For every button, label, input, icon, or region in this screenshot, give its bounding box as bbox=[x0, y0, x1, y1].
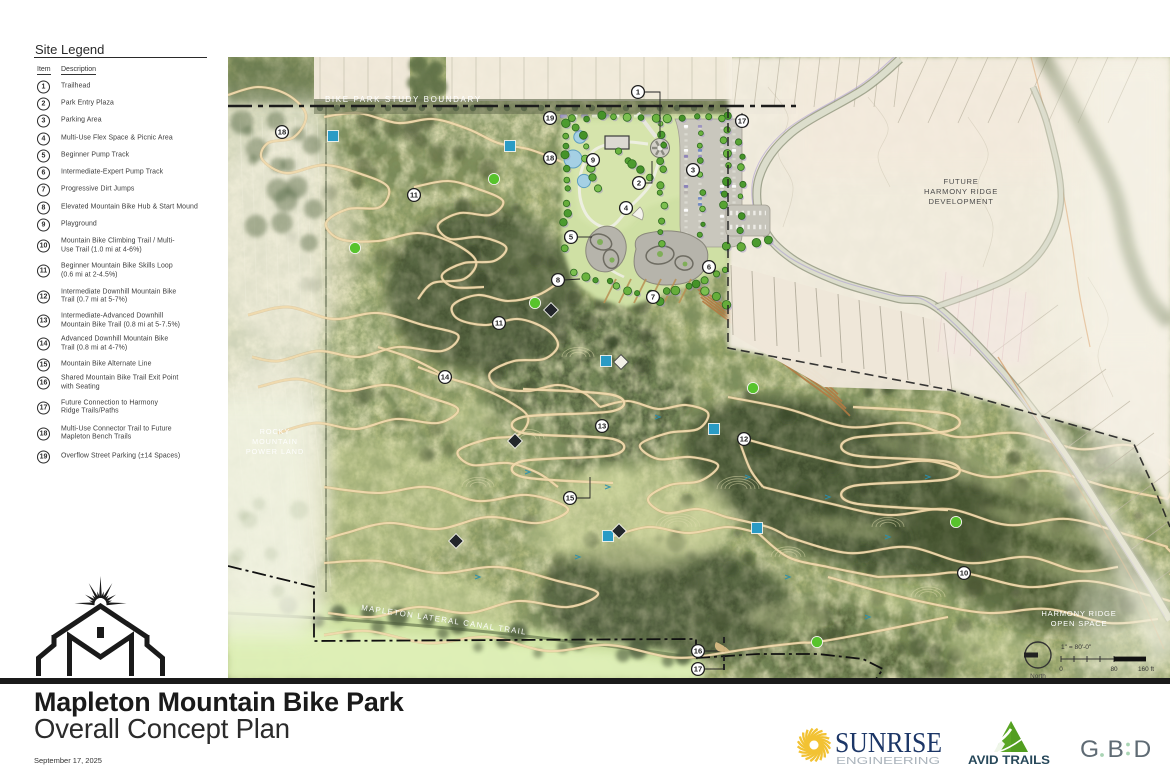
svg-text:AVID TRAILS: AVID TRAILS bbox=[968, 755, 1050, 767]
svg-text:6: 6 bbox=[707, 263, 711, 272]
svg-text:16: 16 bbox=[694, 647, 702, 656]
svg-text:18: 18 bbox=[546, 154, 554, 163]
svg-text:80: 80 bbox=[1110, 666, 1118, 673]
svg-text:15: 15 bbox=[566, 494, 575, 503]
svg-text:14: 14 bbox=[441, 373, 450, 382]
svg-text:ENGINEERING: ENGINEERING bbox=[836, 755, 940, 767]
svg-text:10: 10 bbox=[960, 569, 968, 578]
svg-text:MOUNTAIN: MOUNTAIN bbox=[252, 437, 298, 446]
svg-text:19: 19 bbox=[546, 114, 554, 123]
svg-text:HARMONY RIDGE: HARMONY RIDGE bbox=[924, 187, 998, 196]
svg-text:ROCKY: ROCKY bbox=[260, 427, 291, 436]
svg-text:11: 11 bbox=[410, 191, 419, 200]
svg-text:2: 2 bbox=[637, 179, 641, 188]
svg-text:HARMONY RIDGE: HARMONY RIDGE bbox=[1041, 609, 1116, 618]
svg-text:18: 18 bbox=[278, 128, 286, 137]
svg-text:160 ft: 160 ft bbox=[1138, 666, 1154, 673]
svg-text:D: D bbox=[1134, 736, 1152, 763]
svg-text:9: 9 bbox=[591, 156, 595, 165]
svg-text:3: 3 bbox=[691, 166, 695, 175]
svg-text:8: 8 bbox=[556, 276, 560, 285]
svg-text:11: 11 bbox=[495, 319, 504, 328]
svg-text:13: 13 bbox=[598, 422, 606, 431]
svg-text:0: 0 bbox=[1059, 666, 1063, 673]
svg-text:G: G bbox=[1080, 736, 1099, 763]
svg-text:17: 17 bbox=[694, 665, 702, 674]
svg-text:B: B bbox=[1108, 736, 1124, 763]
svg-text:7: 7 bbox=[651, 293, 655, 302]
svg-text:17: 17 bbox=[738, 117, 746, 126]
svg-text:FUTURE: FUTURE bbox=[944, 177, 979, 186]
svg-text:12: 12 bbox=[740, 435, 748, 444]
svg-text:1" = 80'-0": 1" = 80'-0" bbox=[1061, 644, 1092, 651]
svg-text:POWER LAND: POWER LAND bbox=[246, 447, 304, 456]
svg-text:BIKE PARK STUDY BOUNDARY: BIKE PARK STUDY BOUNDARY bbox=[325, 95, 482, 104]
svg-text:DEVELOPMENT: DEVELOPMENT bbox=[928, 197, 993, 206]
svg-text:OPEN SPACE: OPEN SPACE bbox=[1051, 619, 1108, 628]
